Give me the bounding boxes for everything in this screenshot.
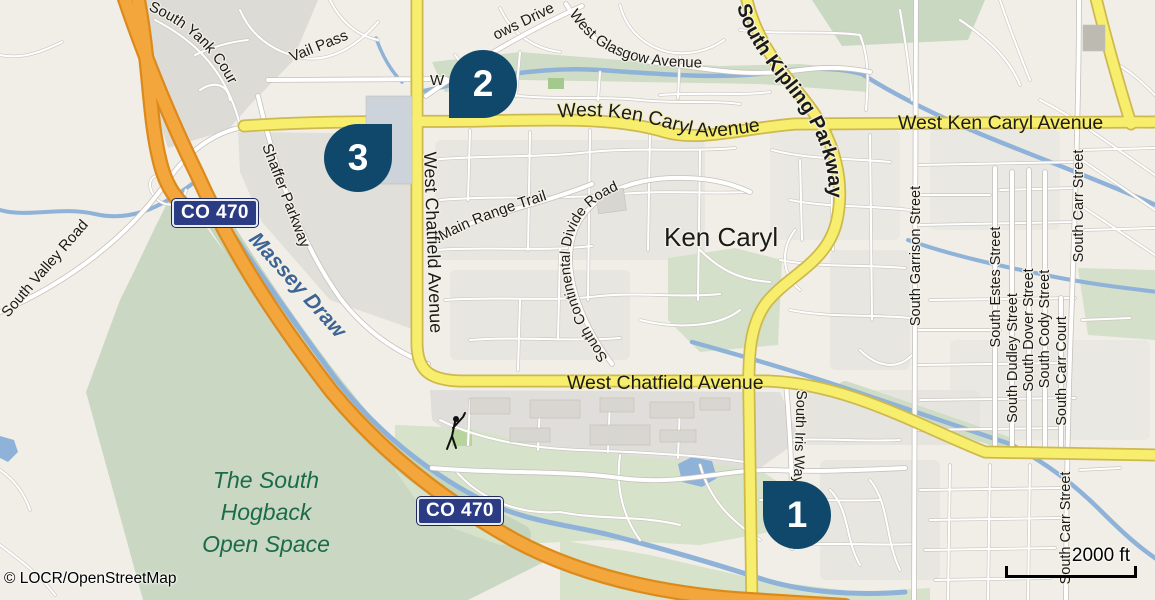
marker-number: 3 [348,137,369,179]
place-label-open-space-line1: The South [213,467,319,493]
route-shield-co470-north: CO 470 [172,199,258,227]
road-label-ken-caryl-east: West Ken Caryl Avenue [898,112,1103,134]
road-label-iris-way: South Iris Way [790,390,809,485]
road-label-carr-street-north: South Carr Street [1071,150,1087,263]
map-marker-1[interactable]: 1 [763,481,831,549]
road-label-dudley: South Dudley Street [1005,293,1021,423]
marker-number: 1 [787,494,808,536]
road-label-chatfield-horizontal: West Chatfield Avenue [567,372,764,394]
place-label-open-space-line3: Open Space [202,531,330,557]
map-tiles: West Ken Caryl Avenue West Ken Caryl Ave… [0,0,1155,600]
map-canvas[interactable]: West Ken Caryl Avenue West Ken Caryl Ave… [0,0,1155,600]
scale-bar-label: 2000 ft [1030,545,1130,567]
scale-bar [1005,566,1137,578]
road-label-cody: South Cody Street [1037,270,1053,389]
road-label-dover: South Dover Street [1021,268,1037,391]
map-attribution: © LOCR/OpenStreetMap [4,570,177,588]
place-label-open-space-line2: Hogback [221,499,313,525]
map-marker-2[interactable]: 2 [449,50,517,118]
road-label-carr-court: South Carr Court [1054,316,1070,426]
road-label-garrison: South Garrison Street [908,186,924,326]
road-label-estes: South Estes Street [988,227,1004,348]
place-label-ken-caryl: Ken Caryl [664,222,778,252]
route-shield-co470-south: CO 470 [417,497,503,525]
map-marker-3[interactable]: 3 [324,124,392,192]
marker-number: 2 [473,63,494,105]
road-label-hidden-west: W [430,72,445,89]
